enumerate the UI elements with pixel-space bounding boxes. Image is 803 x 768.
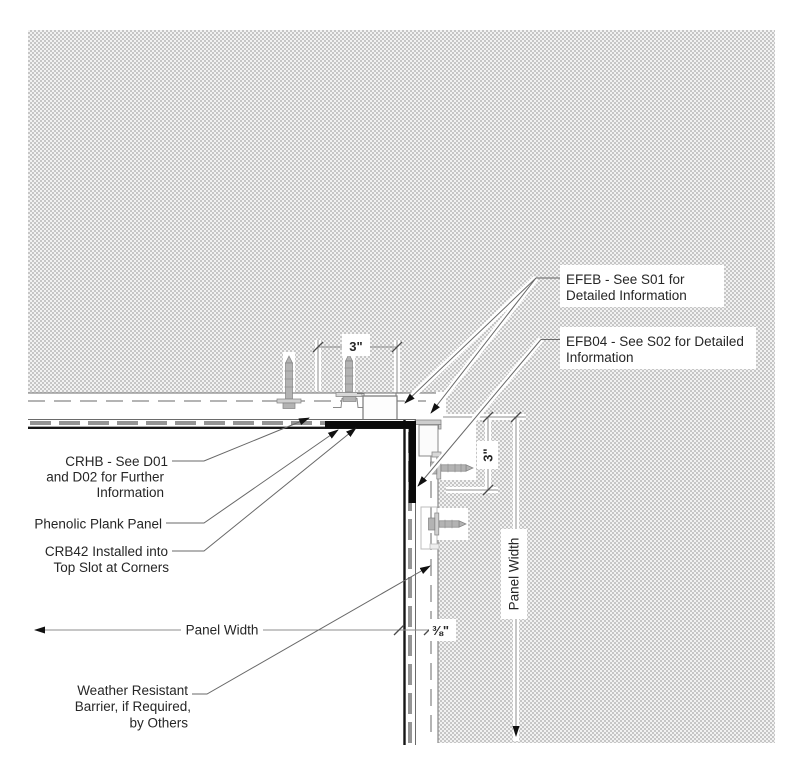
crb42-leader: [172, 428, 356, 551]
crb42-bracket-horizontal: [325, 421, 416, 428]
svg-text:by Others: by Others: [129, 716, 188, 731]
panel-width-vertical-text: Panel Width: [507, 538, 522, 611]
corner-detail-drawing: 3" 3" Panel Width Panel Width ⅜": [0, 0, 803, 768]
corner-bracket: [325, 421, 416, 503]
label-phenolic-plank-panel: Phenolic Plank Panel: [34, 517, 162, 532]
svg-text:Information: Information: [566, 350, 634, 365]
svg-text:EFB04 - See S02 for Detailed: EFB04 - See S02 for Detailed: [566, 334, 744, 349]
svg-text:Detailed Information: Detailed Information: [566, 288, 687, 303]
wall-hatch: [28, 30, 775, 743]
corner-detail-sheet: 3" 3" Panel Width Panel Width ⅜": [0, 0, 803, 768]
svg-text:Phenolic Plank Panel: Phenolic Plank Panel: [34, 517, 162, 532]
svg-text:CRHB - See D01: CRHB - See D01: [65, 454, 168, 469]
phenolic-leader: [166, 430, 338, 523]
corner-trim-channel: [357, 393, 403, 419]
svg-text:Information: Information: [96, 485, 164, 500]
label-efeb: EFEB - See S01 for Detailed Information: [560, 265, 724, 307]
svg-text:and D02 for Further: and D02 for Further: [46, 470, 164, 485]
dim-right-3in-text: 3": [481, 448, 496, 461]
svg-text:CRB42 Installed into: CRB42 Installed into: [45, 544, 168, 559]
label-efb04: EFB04 - See S02 for Detailed Information: [560, 327, 756, 369]
dimension-gap-3-8in: ⅜": [429, 619, 456, 641]
svg-text:EFEB - See S01 for: EFEB - See S01 for: [566, 272, 685, 287]
dim-top-3in-text: 3": [349, 339, 362, 354]
label-crb42: CRB42 Installed into Top Slot at Corners: [45, 544, 169, 575]
label-weather-resistant-barrier: Weather Resistant Barrier, if Required, …: [75, 683, 191, 731]
svg-text:Barrier, if Required,: Barrier, if Required,: [75, 699, 191, 714]
right-hat-channel-upper: [419, 425, 441, 457]
panel-width-horizontal-text: Panel Width: [186, 623, 259, 638]
svg-text:Top Slot at Corners: Top Slot at Corners: [53, 560, 169, 575]
dim-gap-text: ⅜": [432, 623, 449, 638]
efb04-bracket-vertical: [409, 421, 416, 503]
label-crhb: CRHB - See D01 and D02 for Further Infor…: [46, 454, 168, 500]
dimension-panel-width-horizontal: Panel Width: [35, 619, 434, 640]
svg-text:Weather Resistant: Weather Resistant: [77, 683, 188, 698]
